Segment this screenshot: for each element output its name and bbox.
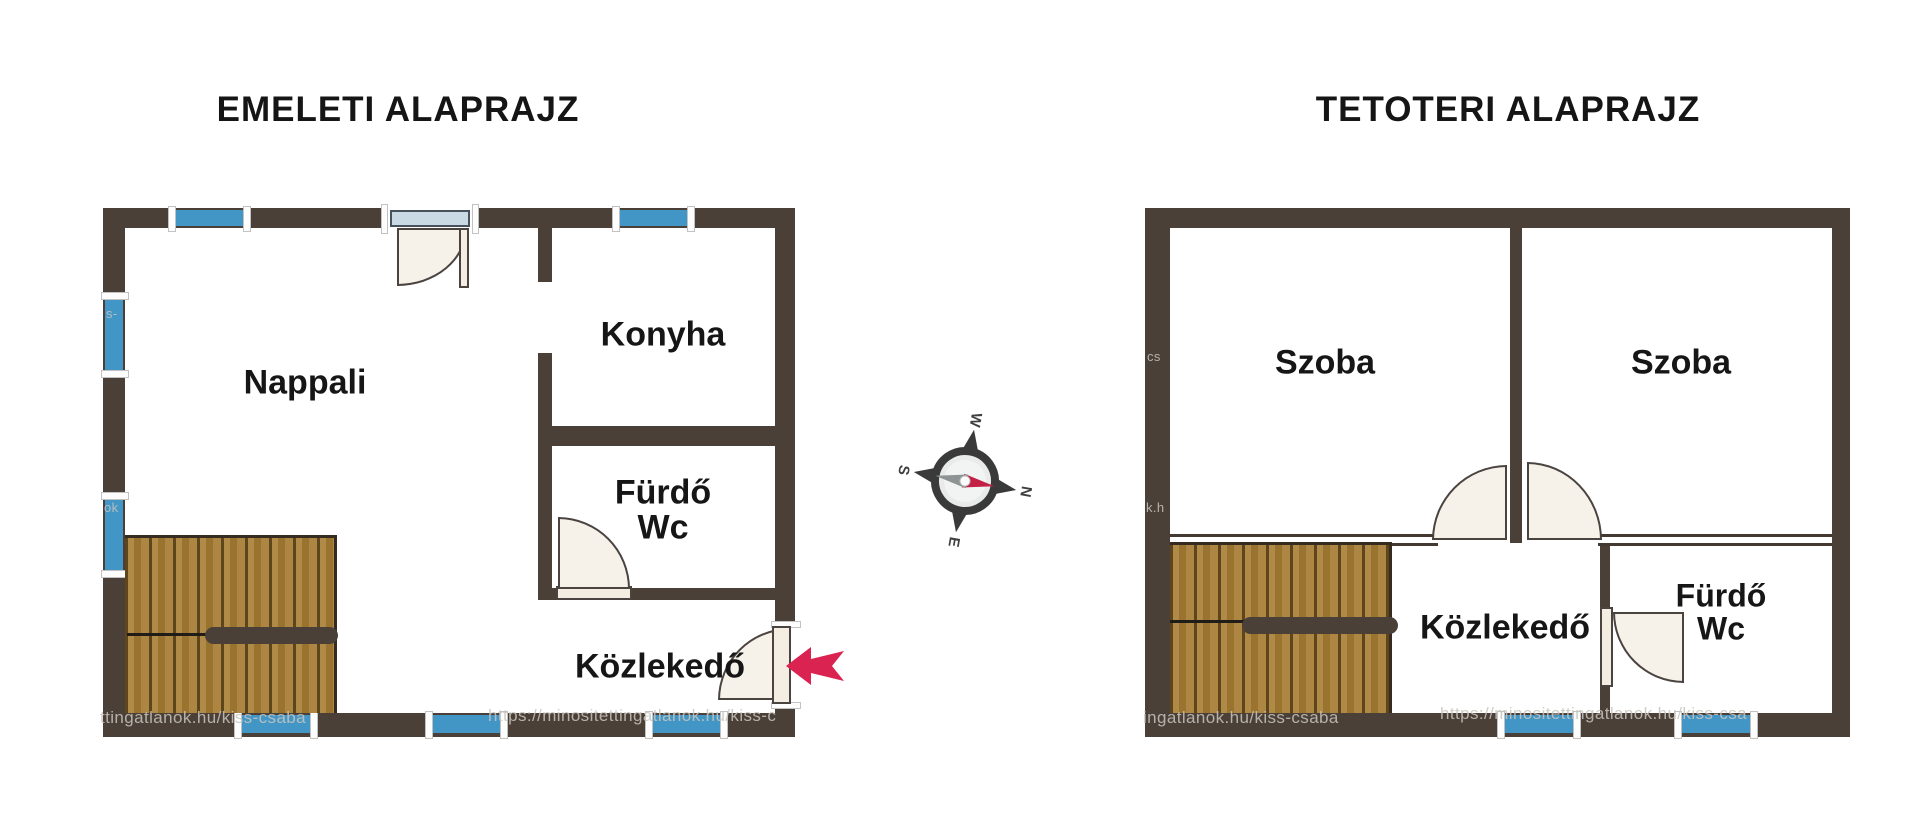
door-leaf-entrance [459,228,469,288]
compass-east-label: E [945,536,963,549]
room-label-szoba-right: Szoba [1631,346,1731,381]
stairs-icon [125,535,337,713]
wall-konyha-lower [538,353,552,600]
room-label-furdo-line1: Fürdő [615,475,711,510]
room-label-furdo-line2: Wc [1676,612,1767,645]
entry-arrow-icon [786,647,844,685]
wall-right [1832,208,1850,737]
wall-top [1145,208,1850,228]
door-leaf-furdo [1600,607,1613,687]
plan-attic-floor: Szoba Szoba Közlekedő Fürdő Wc [1145,208,1850,737]
wall-konyha-furdo [538,426,775,446]
wall-konyha-upper [538,228,552,282]
plan-upper-floor: Nappali Konyha Fürdő Wc Közlekedő [103,208,795,737]
wall-left [1145,208,1170,737]
window-icon [176,210,243,226]
room-label-kozlekedo: Közlekedő [1420,611,1590,646]
compass-west-label: W [966,411,985,429]
window-icon [620,210,687,226]
watermark-text: ingatlanok.hu/kiss-csaba [1143,708,1339,728]
door-arc-szoba-left [1432,465,1507,540]
room-label-kozlekedo: Közlekedő [575,650,745,685]
stair-handrail [1242,617,1398,634]
title-upper-floor: EMELETI ALAPRAJZ [88,90,708,130]
wall-thin-right [1598,534,1832,546]
room-label-furdo: Fürdő Wc [1676,579,1767,644]
wall-left [103,208,125,737]
entrance-glass-panel [390,210,470,227]
room-label-konyha: Konyha [601,318,726,353]
door-arc-furdo [1613,612,1684,683]
watermark-text: https://minositettingatlanok.hu/kiss-c [488,706,776,726]
compass-north-label: N [1016,485,1035,499]
watermark-text: https://minositettingatlanok.hu/kiss-csa [1440,704,1747,724]
stair-step-line [1170,620,1250,623]
room-label-szoba-left: Szoba [1275,346,1375,381]
wall-szoba-divider [1510,228,1522,543]
watermark-text: k.h [1146,500,1165,515]
door-arc-szoba-right [1527,462,1602,540]
room-label-furdo: Fürdő Wc [615,475,711,544]
door-arc-entrance [397,228,467,286]
room-label-nappali: Nappali [244,366,367,401]
room-label-furdo-line1: Fürdő [1676,579,1767,612]
wall-furdo-upper [1600,546,1610,607]
watermark-text: s- [106,306,118,321]
watermark-text: ok [104,500,119,515]
compass-icon: N E S W [895,411,1035,551]
compass-south-label: S [895,464,913,477]
title-attic-floor: TETOTERI ALAPRAJZ [1198,90,1818,130]
floorplan-page: EMELETI ALAPRAJZ TETOTERI ALAPRAJZ [0,0,1920,817]
wall-furdo-bottom [630,588,775,600]
watermark-text: cs [1147,349,1161,364]
room-label-furdo-line2: Wc [615,510,711,545]
watermark-text: ttingatlanok.hu/kiss-csaba [100,708,306,728]
stair-handrail [205,627,338,644]
stair-step-line [127,633,209,636]
